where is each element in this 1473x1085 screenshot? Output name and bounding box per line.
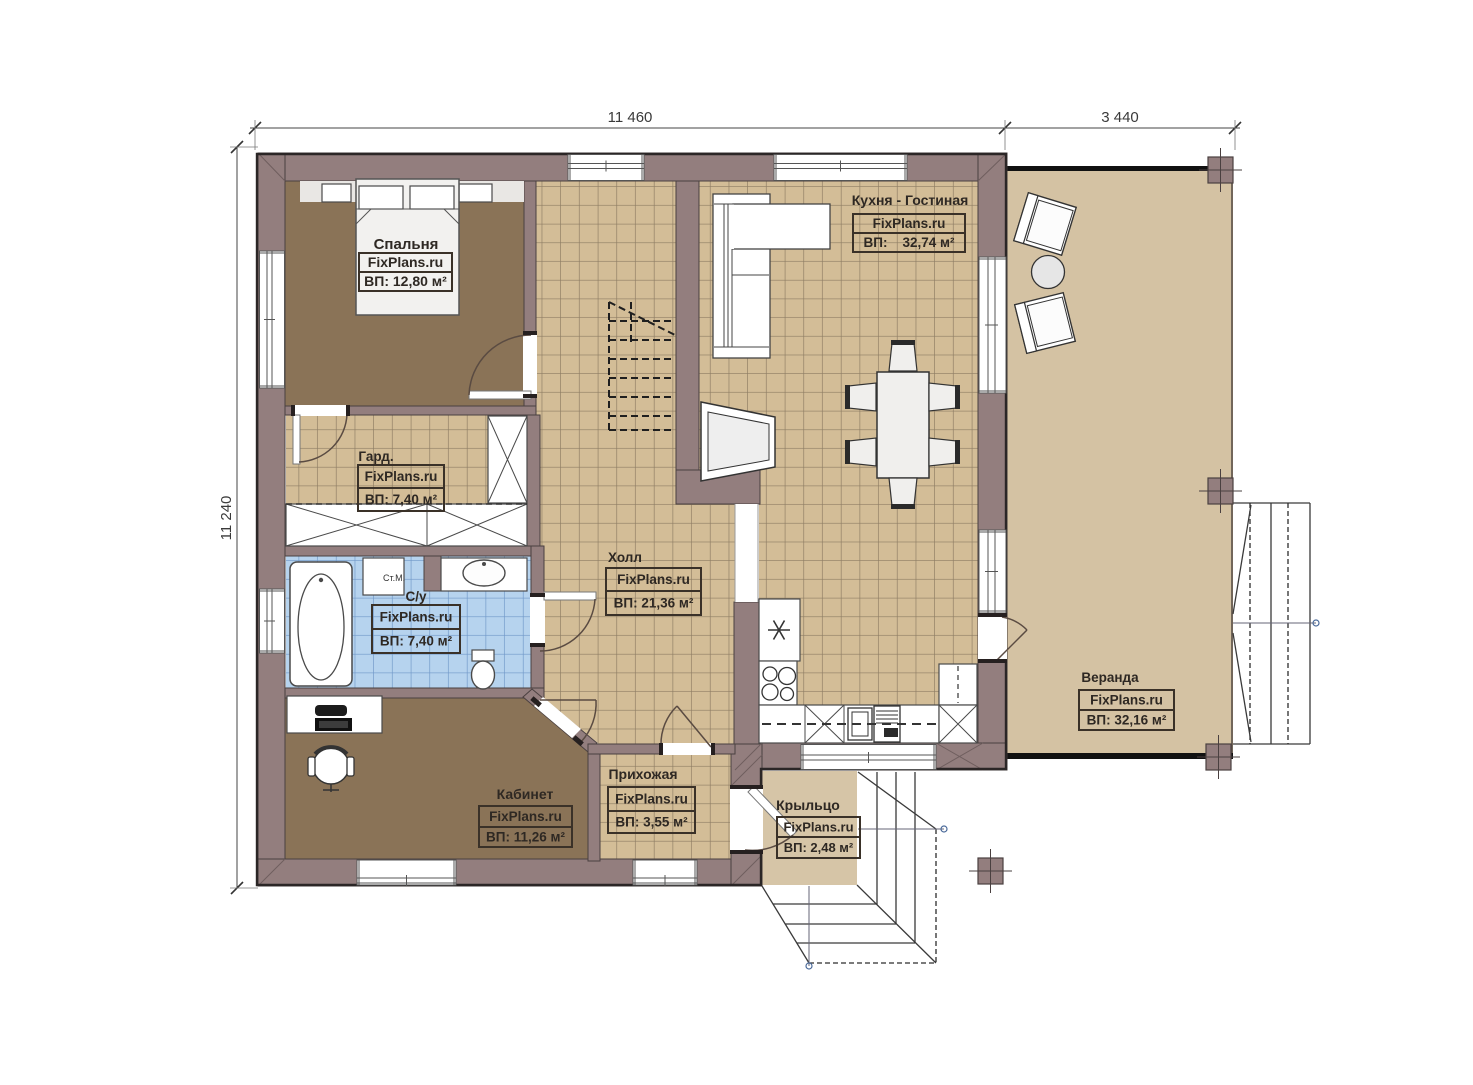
svg-text:С/у: С/у (405, 589, 427, 604)
svg-text:FixPlans.ru: FixPlans.ru (1090, 693, 1163, 708)
svg-text:ВП: 32,16 м²: ВП: 32,16 м² (1087, 713, 1167, 728)
svg-text:FixPlans.ru: FixPlans.ru (615, 792, 688, 807)
svg-text:ВП: 32,74 м²: ВП: 32,74 м² (864, 235, 955, 250)
svg-text:Кухня - Гостиная: Кухня - Гостиная (852, 192, 969, 208)
svg-text:Кабинет: Кабинет (497, 786, 554, 802)
svg-text:Гард.: Гард. (358, 449, 393, 464)
svg-text:11 240: 11 240 (218, 496, 235, 541)
svg-text:FixPlans.ru: FixPlans.ru (489, 809, 562, 824)
svg-text:Крыльцо: Крыльцо (776, 797, 840, 813)
svg-text:ВП: 12,80 м²: ВП: 12,80 м² (364, 273, 447, 289)
svg-text:ВП: 3,55 м²: ВП: 3,55 м² (615, 815, 688, 830)
svg-text:FixPlans.ru: FixPlans.ru (380, 610, 453, 625)
svg-text:11 460: 11 460 (608, 109, 653, 126)
svg-text:Ст.М.: Ст.М. (383, 573, 405, 583)
svg-text:Спальня: Спальня (374, 236, 439, 253)
svg-text:FixPlans.ru: FixPlans.ru (368, 254, 443, 270)
svg-text:ВП: 7,40 м²: ВП: 7,40 м² (380, 634, 453, 649)
svg-text:FixPlans.ru: FixPlans.ru (783, 820, 853, 835)
svg-text:ВП: 7,40 м²: ВП: 7,40 м² (365, 492, 438, 507)
svg-text:3 440: 3 440 (1101, 109, 1139, 126)
svg-text:FixPlans.ru: FixPlans.ru (365, 469, 438, 484)
svg-text:Веранда: Веранда (1081, 670, 1139, 685)
svg-text:FixPlans.ru: FixPlans.ru (617, 572, 690, 587)
svg-text:ВП: 21,36 м²: ВП: 21,36 м² (614, 596, 694, 611)
svg-text:FixPlans.ru: FixPlans.ru (873, 216, 946, 231)
svg-text:Холл: Холл (608, 550, 642, 565)
svg-text:Прихожая: Прихожая (608, 766, 677, 782)
svg-text:ВП: 11,26 м²: ВП: 11,26 м² (486, 830, 565, 845)
svg-text:ВП: 2,48 м²: ВП: 2,48 м² (784, 840, 854, 855)
